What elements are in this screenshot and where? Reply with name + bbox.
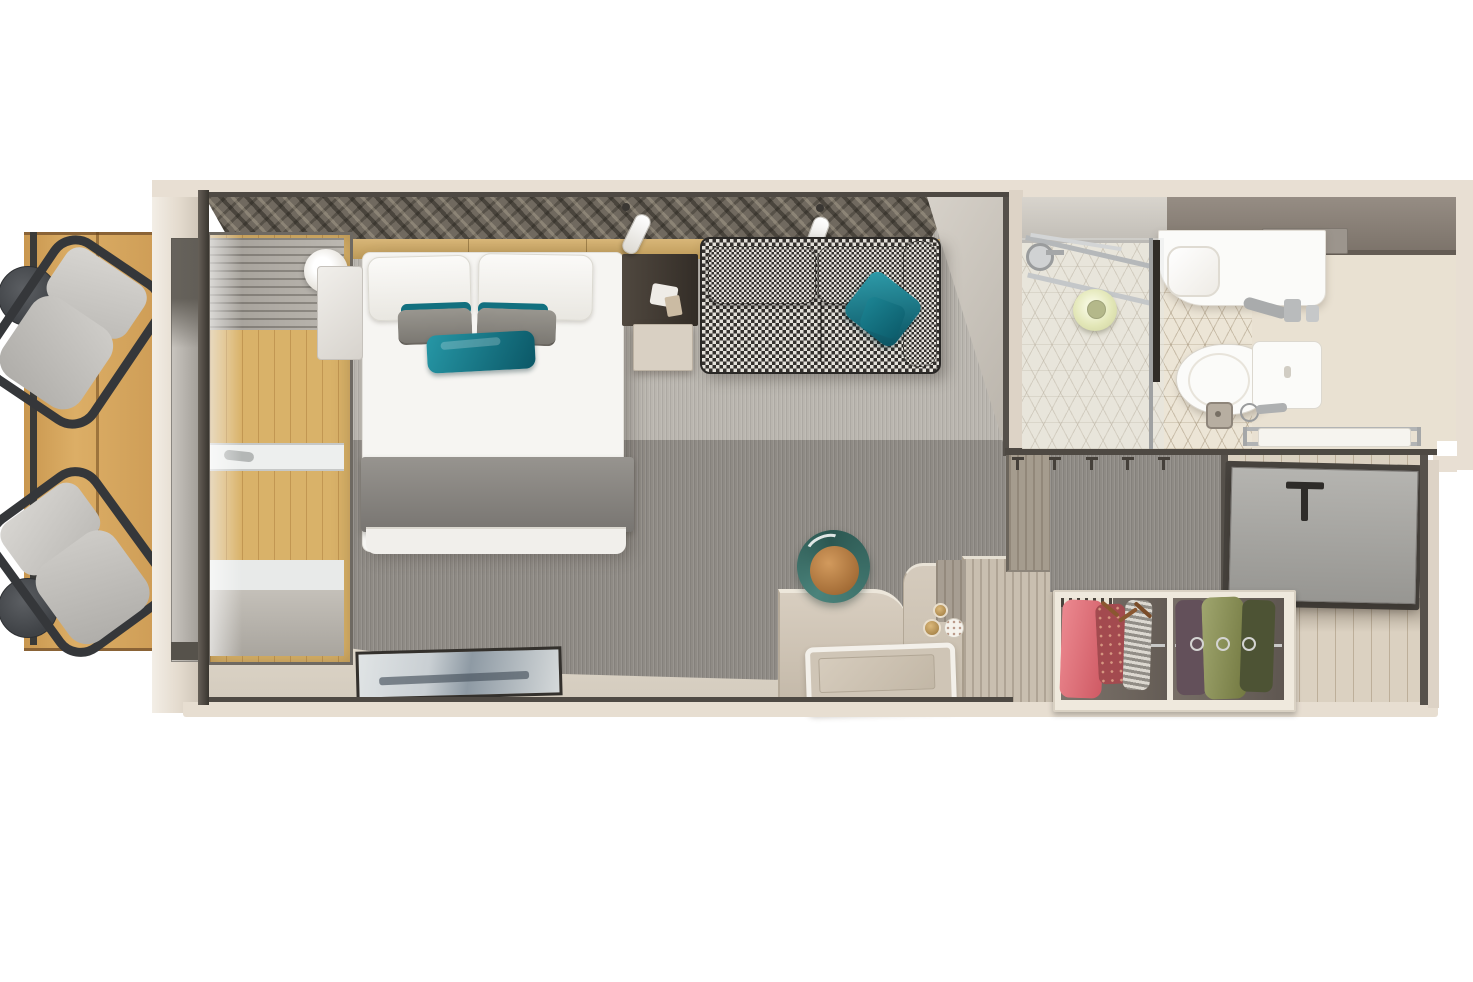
bed-throw-blanket	[361, 457, 634, 532]
nightstand-drawer	[633, 324, 693, 371]
glazing-bottom-rail	[171, 642, 198, 660]
bath-partition-wall	[1009, 190, 1023, 456]
marble-nightstand	[317, 266, 363, 360]
wall-tv	[355, 646, 562, 700]
rolled-towel-ring	[1073, 289, 1117, 331]
hanger-hook	[1190, 637, 1204, 651]
coat-hook	[1086, 457, 1098, 470]
flower-dish	[944, 618, 964, 638]
coat-hook	[1049, 457, 1061, 470]
coat-hook	[1012, 457, 1024, 470]
coat-hook	[1122, 457, 1134, 470]
round-stool	[797, 530, 870, 603]
left-wall-edge-line	[198, 190, 209, 705]
luggage-bench	[962, 556, 1056, 706]
wall-notch	[1437, 441, 1457, 456]
entry-right-wall-beige	[1428, 460, 1439, 708]
drain-hole	[1215, 411, 1221, 417]
bed-lumbar-pillow-teal	[426, 330, 536, 374]
slatted-end-panel	[1006, 452, 1055, 572]
reading-light-cord	[622, 203, 630, 211]
glass-seal-strip	[1152, 240, 1160, 382]
shower-arm	[1046, 250, 1064, 255]
corridor-carpet	[1050, 452, 1227, 592]
nightstand-card	[664, 295, 682, 317]
towel-ring-hole	[1087, 300, 1106, 319]
towel-rack-end	[1417, 427, 1421, 446]
towel-on-rack	[1258, 428, 1411, 447]
shower-head	[1026, 243, 1054, 271]
reading-light-cord	[816, 204, 824, 212]
dark-nightstand	[622, 254, 698, 326]
bathroom-right-wall	[1456, 180, 1473, 470]
sofa-back-cushion	[708, 246, 816, 304]
desk-knob-gold	[933, 603, 948, 618]
bathroom-south-wall-line	[1005, 448, 1456, 455]
toilet-seat-ring	[1188, 353, 1250, 408]
floor-drain	[1206, 402, 1233, 429]
bath-fixture	[1306, 305, 1319, 322]
coat-hook	[1158, 457, 1170, 470]
entry-right-wall	[1420, 455, 1428, 705]
bath-fixture	[1284, 299, 1301, 322]
sheer-curtain-highlight	[210, 235, 242, 656]
sofa-seat-seam	[820, 300, 822, 362]
stateroom-floorplan-render	[0, 0, 1473, 982]
hanger-hook	[1242, 637, 1256, 651]
toilet-flush-button	[1284, 366, 1291, 378]
door-handle-stem	[1301, 485, 1308, 521]
towel-rack-end	[1243, 427, 1247, 446]
glass-post	[1149, 238, 1153, 449]
hanger-hook	[1216, 637, 1230, 651]
tv-art-streak	[379, 671, 529, 686]
glazing-track-shadow	[171, 238, 198, 348]
tray-inner	[818, 654, 935, 693]
pillow-sheen	[440, 337, 500, 350]
sink-bowl	[1167, 246, 1220, 297]
bed-foot-sheet	[366, 527, 626, 554]
desk-knob-gold	[923, 619, 941, 637]
